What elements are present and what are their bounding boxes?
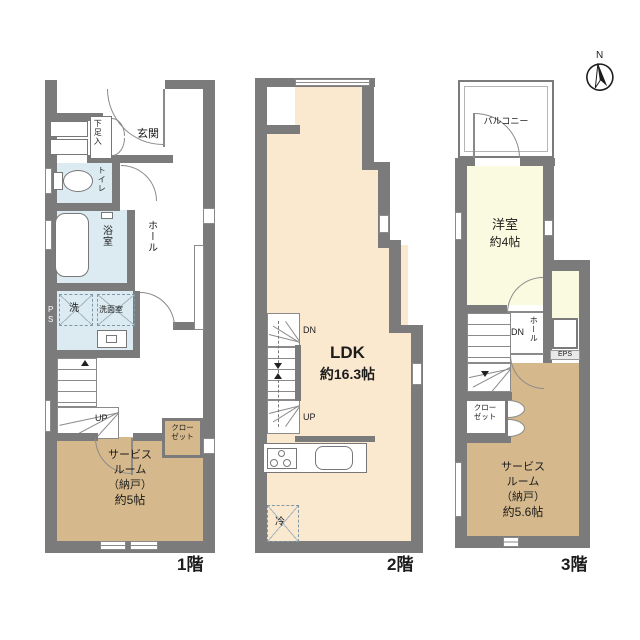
wall	[255, 78, 267, 553]
stairs-1f-straight	[57, 358, 97, 407]
wall	[455, 158, 475, 166]
burner	[278, 450, 285, 457]
wall	[45, 350, 140, 358]
window	[100, 541, 126, 550]
wall	[411, 325, 423, 553]
washer-label: 洗	[69, 303, 79, 315]
wall	[255, 125, 300, 134]
washroom-door-arc	[140, 292, 175, 327]
burner	[283, 459, 291, 467]
window	[194, 245, 204, 330]
floor1-plan: 下足入 玄関 トイレ 浴室 ホール 洗 洗面室 PS UP クローゼット サービ…	[45, 80, 215, 553]
ldk-size-label: 約16.3帖	[295, 366, 400, 382]
bathtub	[55, 213, 89, 277]
window	[45, 400, 51, 432]
window	[203, 438, 215, 454]
up-label-1f: UP	[95, 413, 108, 423]
wall	[362, 78, 374, 167]
balcony-label: バルコニー	[463, 116, 549, 126]
wall	[127, 210, 135, 291]
kitchen-sink	[315, 446, 353, 470]
eps-shaft	[552, 318, 578, 349]
stairs-2f-winder-bottom	[267, 400, 300, 434]
stair-arrow	[481, 371, 489, 377]
bath-counter	[101, 212, 113, 219]
genkan-label: 玄関	[137, 128, 159, 141]
wall	[455, 536, 590, 548]
up-label-2f: UP	[303, 412, 316, 422]
window	[379, 215, 389, 233]
kitchen-wall	[295, 436, 375, 442]
service-room-label-3f: サービス ルーム （納戸） 約5.6帖	[468, 460, 578, 520]
wall	[57, 203, 120, 211]
closet-label-3f: クローゼット	[464, 404, 506, 421]
void-alcove	[267, 87, 295, 125]
vent	[503, 537, 519, 547]
western-room-nook	[552, 271, 579, 318]
western-room-size-label: 約4帖	[467, 236, 543, 250]
hall-label-3f: ホール	[529, 316, 538, 343]
stair-arrow	[274, 373, 282, 379]
stairs-3f-winder	[467, 363, 511, 392]
wall	[543, 158, 554, 270]
entrance-door-leaf	[163, 89, 165, 147]
eps-label: EPS	[550, 350, 580, 360]
window	[455, 462, 462, 517]
shelf	[50, 139, 88, 155]
wall	[45, 433, 98, 441]
cabinet-door-arc	[112, 138, 125, 156]
window	[203, 208, 215, 224]
dn-label-3f: DN	[511, 327, 524, 337]
compass-rose-icon	[583, 59, 619, 97]
fridge-label: 冷	[275, 517, 285, 529]
window	[544, 220, 553, 236]
burner	[270, 459, 278, 467]
wall	[57, 283, 135, 291]
window	[45, 220, 52, 250]
service-room-label-1f: サービス ルーム （納戸） 約5帖	[75, 448, 185, 508]
hall-door-leaf	[510, 353, 544, 355]
washroom-label: 洗面室	[99, 305, 123, 314]
floor3-number-label: 3階	[561, 555, 587, 575]
toilet-bowl	[63, 170, 93, 192]
dn-label-2f: DN	[303, 325, 316, 335]
floor2-plan: DN UP 冷 LDK 約16.3帖	[255, 75, 425, 553]
stairs-up-arrow	[81, 360, 89, 366]
vanity-faucet	[106, 335, 117, 343]
western-room-label: 洋室	[467, 218, 543, 233]
wall	[133, 433, 162, 441]
wall	[455, 392, 512, 400]
floor1-number-label: 1階	[177, 555, 203, 575]
wall	[389, 240, 401, 333]
window	[455, 212, 462, 240]
compass: N	[584, 50, 618, 98]
shelf	[50, 121, 88, 137]
bath-label: 浴室	[100, 225, 112, 247]
pipe-space-label: PS	[46, 305, 55, 325]
ldk-label: LDK	[295, 343, 400, 363]
stair-arrow	[274, 363, 282, 369]
window	[295, 79, 370, 86]
window	[45, 168, 52, 194]
toilet-tank	[53, 172, 63, 190]
wall	[165, 80, 215, 89]
wall	[579, 260, 590, 548]
wall	[462, 436, 511, 443]
window	[130, 541, 158, 550]
wall	[255, 541, 423, 553]
floorplan-canvas: 下足入 玄関 トイレ 浴室 ホール 洗 洗面室 PS UP クローゼット サービ…	[0, 0, 640, 640]
closet-label-1f: クローゼット	[164, 424, 201, 441]
stairs-2f-winder-top	[267, 313, 300, 347]
shoe-storage-label: 下足入	[93, 119, 102, 146]
toilet-door-arc	[121, 165, 157, 201]
toilet-label: トイレ	[97, 166, 106, 193]
floor3-plan: EPS バルコニー 洋室 約4帖 DN ホール クローゼット サービス ルーム …	[455, 78, 590, 548]
wall	[467, 305, 507, 313]
window	[412, 363, 422, 385]
floor2-number-label: 2階	[387, 555, 413, 575]
wall	[203, 80, 215, 553]
stairs-3f-straight	[467, 313, 511, 363]
hall-label-1f: ホール	[145, 220, 157, 253]
western-room-door-leaf	[507, 311, 543, 313]
